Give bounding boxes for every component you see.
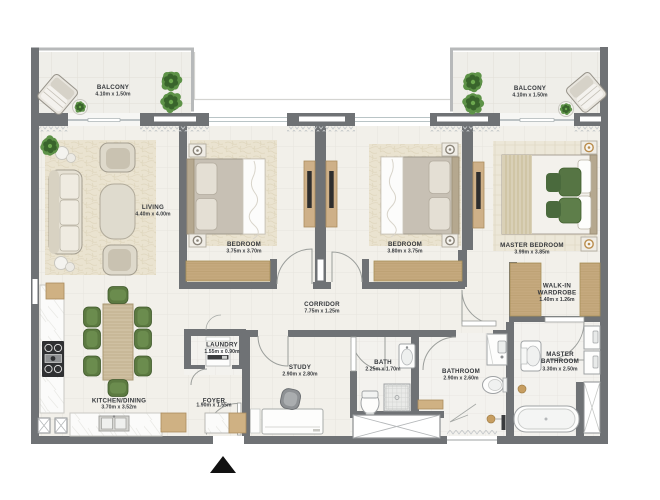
svg-text:BATHROOM: BATHROOM (541, 358, 579, 365)
svg-text:4.10m x 1.50m: 4.10m x 1.50m (512, 93, 548, 99)
svg-text:MASTER BEDROOM: MASTER BEDROOM (500, 242, 564, 249)
svg-text:1.55m x 0.90m: 1.55m x 0.90m (204, 349, 240, 355)
svg-text:3.30m x 2.50m: 3.30m x 2.50m (542, 367, 578, 373)
svg-text:CORRIDOR: CORRIDOR (304, 301, 340, 308)
svg-text:2.90m x 2.80m: 2.90m x 2.80m (282, 372, 318, 378)
svg-text:KITCHEN/DINING: KITCHEN/DINING (92, 398, 146, 405)
svg-text:BATHROOM: BATHROOM (442, 368, 480, 375)
svg-text:3.99m x 3.85m: 3.99m x 3.85m (514, 250, 550, 256)
svg-text:BATH: BATH (374, 359, 392, 366)
svg-text:1.40m x 1.26m: 1.40m x 1.26m (539, 297, 575, 303)
svg-text:1.90m x 1.55m: 1.90m x 1.55m (196, 403, 232, 409)
svg-text:4.10m x 1.50m: 4.10m x 1.50m (95, 92, 131, 98)
svg-text:MASTER: MASTER (546, 351, 574, 358)
svg-text:LIVING: LIVING (142, 204, 164, 211)
svg-text:BALCONY: BALCONY (514, 85, 547, 92)
svg-text:3.75m x 3.70m: 3.75m x 3.70m (226, 249, 262, 255)
svg-text:LAUNDRY: LAUNDRY (206, 342, 238, 349)
svg-text:2.90m x 2.60m: 2.90m x 2.60m (443, 376, 479, 382)
svg-text:WARDROBE: WARDROBE (538, 290, 577, 297)
svg-text:BEDROOM: BEDROOM (388, 241, 422, 248)
svg-text:BEDROOM: BEDROOM (227, 241, 261, 248)
svg-text:2.25m x 1.70m: 2.25m x 1.70m (365, 367, 401, 373)
svg-text:3.80m x 3.75m: 3.80m x 3.75m (387, 249, 423, 255)
svg-text:STUDY: STUDY (289, 364, 312, 371)
svg-text:7.75m x 1.25m: 7.75m x 1.25m (304, 309, 340, 315)
svg-text:WALK-IN: WALK-IN (543, 283, 571, 290)
svg-text:4.40m x 4.00m: 4.40m x 4.00m (135, 212, 171, 218)
svg-text:BALCONY: BALCONY (97, 84, 130, 91)
svg-text:3.70m x 3.52m: 3.70m x 3.52m (101, 405, 137, 411)
